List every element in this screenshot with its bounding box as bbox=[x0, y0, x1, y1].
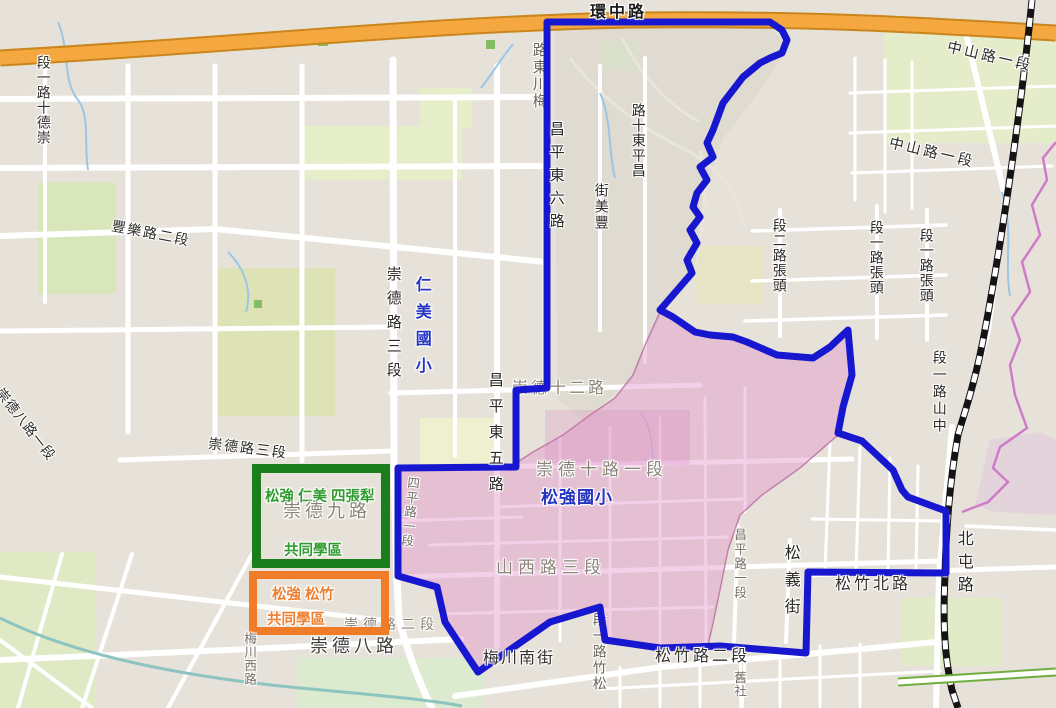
district-boundary-overlay bbox=[0, 0, 1056, 708]
green-box-line2: 共同學區 bbox=[284, 539, 342, 560]
district-boundary bbox=[398, 22, 946, 672]
green-box-line1: 松強 仁美 四張犁 bbox=[265, 485, 375, 506]
map-canvas: 崇德十二路崇德路二段路東川梅四平路一段段一路竹松 松強 仁美 四張犁 共同學區 … bbox=[0, 0, 1056, 708]
orange-box-line2: 共同學區 bbox=[267, 608, 325, 629]
green-legend-box: 松強 仁美 四張犁 共同學區 bbox=[252, 464, 390, 568]
orange-legend-box: 松強 松竹 共同學區 bbox=[249, 571, 389, 635]
orange-box-line1: 松強 松竹 bbox=[272, 583, 334, 604]
